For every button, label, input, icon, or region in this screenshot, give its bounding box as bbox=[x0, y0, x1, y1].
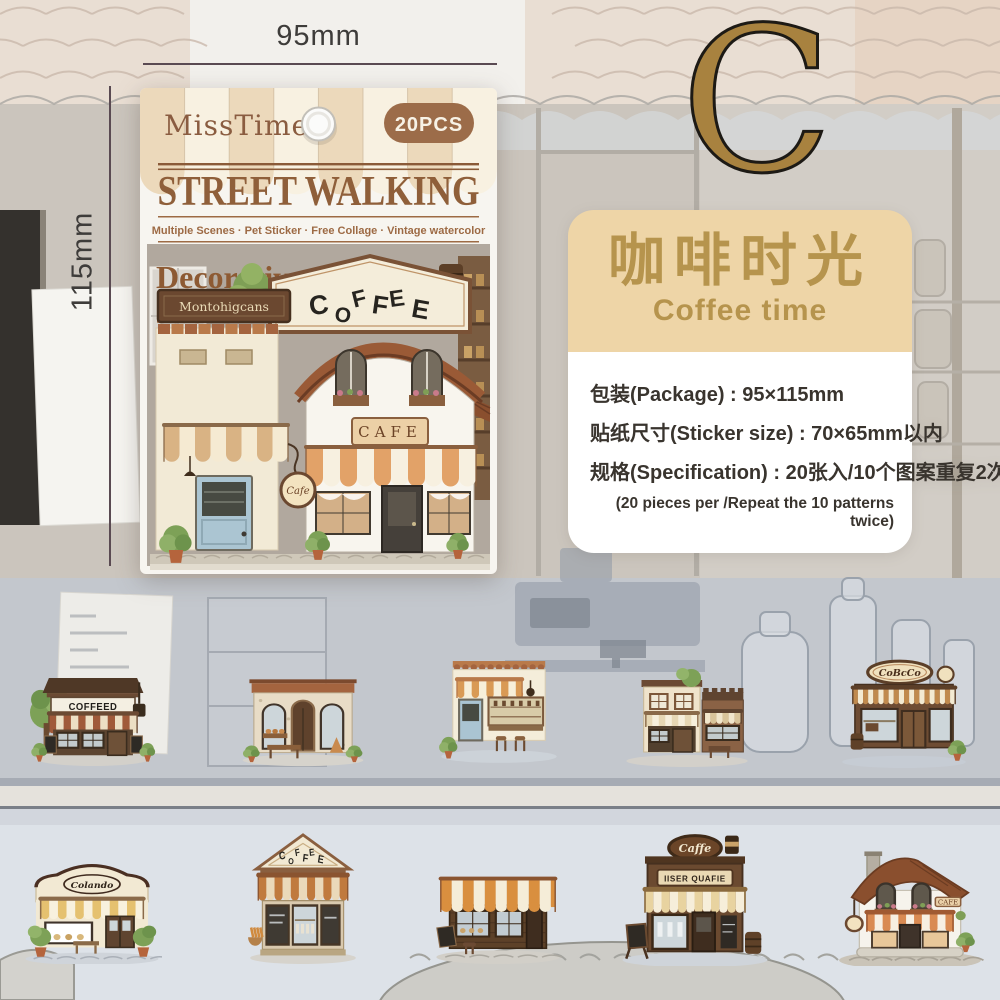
spec-list: 包装(Package) : 95×115mm贴纸尺寸(Sticker size)… bbox=[590, 378, 894, 485]
svg-text:Multiple Scenes · Pet Stic: Multiple Scenes · Pet Sticker · Free Col… bbox=[152, 225, 486, 237]
sticker-shop bbox=[622, 658, 752, 768]
sticker-shop: CoBcCo bbox=[840, 656, 968, 768]
theme-title-en: Coffee time bbox=[568, 294, 912, 328]
svg-text:CoBcCo: CoBcCo bbox=[879, 668, 921, 679]
package-artwork: MissTime20PCSSTREET WALKINGMultiple Scen… bbox=[140, 88, 497, 574]
svg-text:C: C bbox=[278, 850, 286, 863]
svg-text:C: C bbox=[307, 289, 330, 321]
svg-text:CAFE: CAFE bbox=[358, 423, 422, 441]
shop-illustration-pediment: COFFEE bbox=[242, 830, 364, 964]
sticker-shop: CAFE bbox=[834, 840, 986, 966]
svg-text:O: O bbox=[333, 303, 352, 328]
shop-illustration-gableSign: COFFEED bbox=[30, 648, 156, 766]
theme-title-zh: 咖啡时光 bbox=[568, 210, 912, 294]
svg-text:Montohigcans: Montohigcans bbox=[179, 299, 269, 314]
product-image: 95mm 115mm MissTime20PCSSTREET WALKINGMu… bbox=[0, 0, 1000, 1000]
spec-note: (20 pieces per /Repeat the 10 patterns t… bbox=[590, 495, 894, 531]
info-panel-header: 咖啡时光 Coffee time bbox=[568, 210, 912, 352]
sticker-shop bbox=[436, 646, 562, 764]
shop-illustration-cottage: CAFE bbox=[834, 840, 986, 966]
spec-line: 包装(Package) : 95×115mm bbox=[590, 378, 894, 407]
spec-line: 贴纸尺寸(Sticker size) : 70×65mm以内 bbox=[590, 417, 894, 446]
shop-illustration-doubleShop bbox=[622, 658, 752, 768]
sticker-shop bbox=[432, 856, 564, 964]
svg-text:E: E bbox=[308, 847, 315, 859]
sticker-package: MissTime20PCSSTREET WALKINGMultiple Scen… bbox=[140, 88, 497, 574]
svg-text:20PCS: 20PCS bbox=[395, 114, 463, 136]
svg-text:Caffe: Caffe bbox=[679, 842, 712, 855]
variant-letter: C bbox=[672, 2, 842, 202]
svg-text:IISER QUAFIE: IISER QUAFIE bbox=[664, 874, 726, 883]
shop-illustration-curvedParapet: Colando bbox=[22, 850, 162, 964]
sticker-shop bbox=[236, 662, 370, 768]
shop-illustration-bigAwning bbox=[432, 856, 564, 964]
width-dimension-line bbox=[143, 63, 497, 65]
height-dimension-line bbox=[109, 86, 111, 566]
spec-line: 规格(Specification) : 20张入/10个图案重复2次 bbox=[590, 456, 894, 485]
sticker-shop: COFFEED bbox=[30, 648, 156, 766]
package-width-label: 95mm bbox=[140, 20, 497, 53]
info-panel-specs: 包装(Package) : 95×115mm贴纸尺寸(Sticker size)… bbox=[568, 352, 912, 553]
shop-illustration-ovalSign: CoBcCo bbox=[840, 656, 968, 768]
sticker-shop: CaffeIISER QUAFIE bbox=[620, 832, 770, 966]
shop-illustration-tallDark: CaffeIISER QUAFIE bbox=[620, 832, 770, 966]
shop-illustration-stoneBakery bbox=[236, 662, 370, 768]
svg-text:MissTime: MissTime bbox=[164, 109, 309, 142]
info-panel: 咖啡时光 Coffee time 包装(Package) : 95×115mm贴… bbox=[568, 210, 912, 553]
shop-illustration-creamBar bbox=[436, 646, 562, 764]
svg-text:Cafe: Cafe bbox=[286, 486, 309, 497]
sticker-shop: COFFEE bbox=[242, 830, 364, 964]
package-height-label: 115mm bbox=[67, 207, 100, 317]
svg-text:Colando: Colando bbox=[71, 881, 114, 890]
svg-text:O: O bbox=[288, 856, 294, 866]
svg-text:STREET WALKING: STREET WALKING bbox=[158, 169, 480, 215]
svg-text:CAFE: CAFE bbox=[938, 899, 958, 907]
sticker-shop: Colando bbox=[22, 850, 162, 964]
